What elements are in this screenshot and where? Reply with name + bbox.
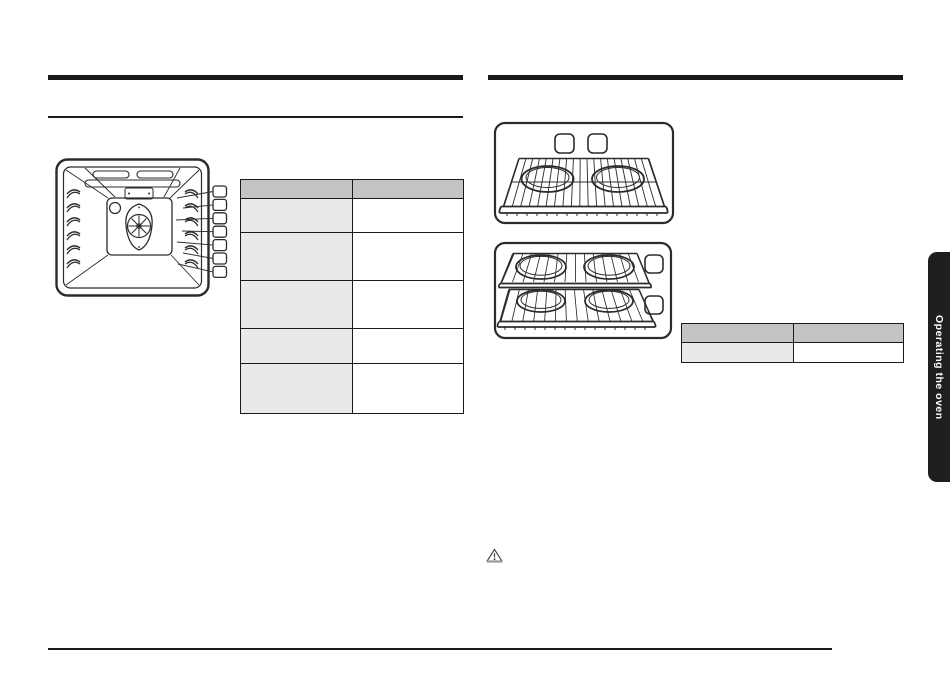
oven-cavity-rack-positions-diagram	[55, 158, 230, 298]
table-cell	[241, 199, 353, 233]
table-cell	[794, 343, 904, 363]
table-row	[241, 233, 464, 281]
table-cell	[241, 364, 353, 414]
left-section-heading-rule	[48, 75, 463, 80]
table-row	[682, 343, 904, 363]
table-cell	[241, 233, 353, 281]
table-header-cell	[794, 324, 904, 343]
table-cell	[241, 329, 353, 364]
table-header-cell	[682, 324, 794, 343]
right-section-heading-rule	[488, 75, 903, 80]
table-cell	[353, 329, 464, 364]
two-racks-four-pans-illustration	[493, 241, 673, 340]
chapter-side-tab-label: Operating the oven	[933, 315, 945, 420]
table-header-row	[682, 324, 904, 343]
table-cell	[241, 281, 353, 329]
left-subheading-rule	[48, 116, 463, 118]
rack-position-table	[240, 179, 464, 414]
rack-position-callout-boxes	[213, 186, 227, 277]
single-rack-two-pans-illustration	[493, 121, 675, 225]
table-row	[241, 199, 464, 233]
table-cell	[353, 364, 464, 414]
footer-rule	[48, 648, 832, 650]
table-row	[241, 281, 464, 329]
table-cell	[353, 281, 464, 329]
table-row	[241, 329, 464, 364]
table-header-cell	[241, 180, 353, 199]
table-cell	[353, 233, 464, 281]
table-cell	[353, 199, 464, 233]
warning-triangle-icon	[486, 548, 503, 564]
table-row	[241, 364, 464, 414]
table-header-row	[241, 180, 464, 199]
table-cell	[682, 343, 794, 363]
table-header-cell	[353, 180, 464, 199]
chapter-side-tab: Operating the oven	[928, 252, 950, 482]
oven-light-icon	[110, 203, 121, 214]
multi-rack-table	[681, 323, 904, 363]
manual-page: Operating the oven	[0, 0, 950, 673]
